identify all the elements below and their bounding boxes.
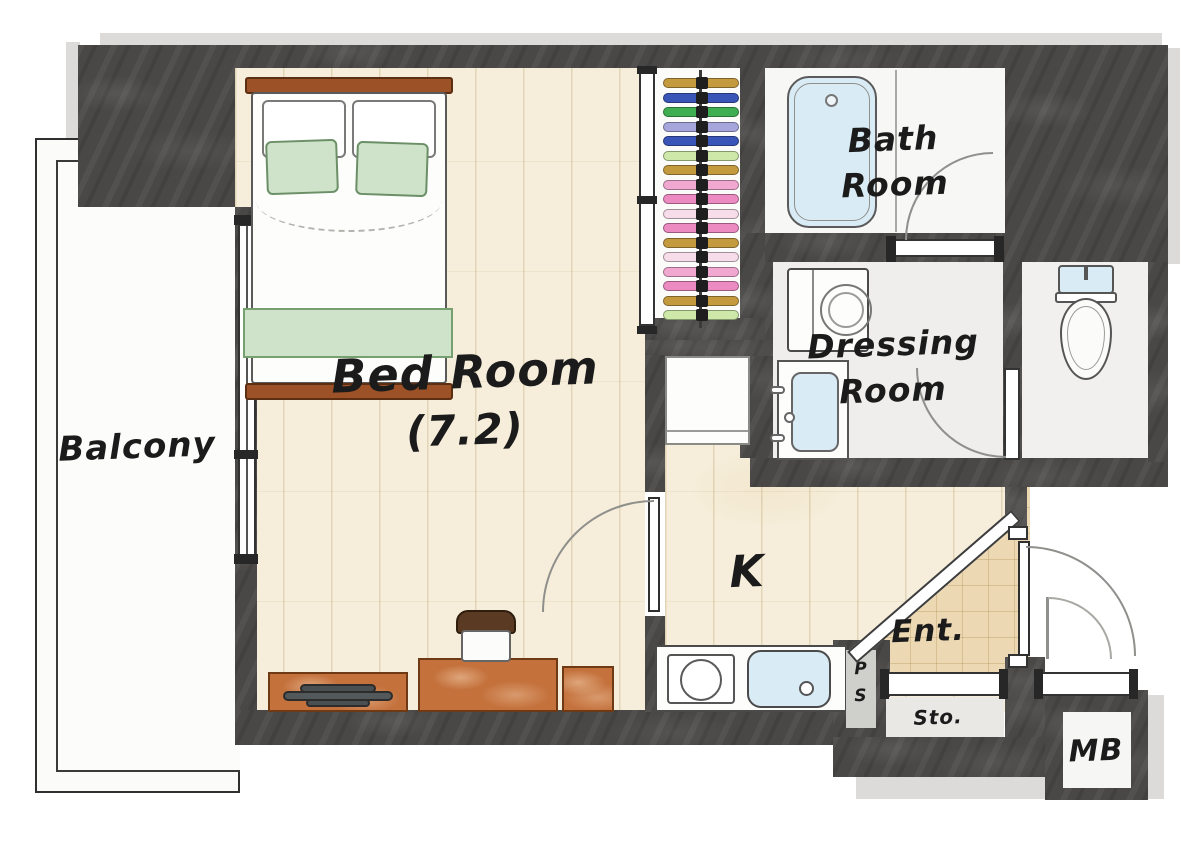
refrigerator-space-line: [667, 430, 748, 432]
bedroom-size-label: (7.2): [405, 403, 524, 456]
front-door-arc: [1026, 546, 1136, 656]
hanging-clothes: [663, 296, 739, 306]
wall-segment: [235, 710, 860, 745]
hanging-clothes: [663, 180, 739, 190]
shadow: [1148, 695, 1164, 799]
storage-door-bar: [884, 672, 1004, 696]
desk-chair-seat: [461, 630, 511, 662]
door-bar-cap: [1129, 669, 1138, 699]
hanger-clip: [696, 237, 708, 249]
bathtub-drain: [825, 94, 838, 107]
tv: [300, 684, 376, 693]
hanging-clothes: [663, 209, 739, 219]
floor-plan-image: P S Balcony Bed Room (7.2) Bath Room Dre…: [0, 0, 1200, 857]
window-cap: [234, 450, 258, 459]
hanging-clothes: [663, 136, 739, 146]
wall-segment: [645, 318, 765, 340]
pipe-shaft-label-s: S: [854, 686, 868, 706]
closet-door-cap: [637, 66, 657, 74]
washing-machine-drum-inner: [828, 292, 864, 328]
tv: [306, 699, 370, 707]
hanger-clip: [696, 106, 708, 118]
front-door-jamb: [1008, 526, 1028, 540]
door-bar-cap: [994, 236, 1004, 262]
hanging-clothes: [663, 281, 739, 291]
shadow: [1168, 48, 1180, 264]
hanging-clothes: [663, 78, 739, 88]
wall-segment: [750, 458, 1168, 487]
window-cap: [234, 554, 258, 564]
hanger-clip: [696, 208, 708, 220]
toilet-door-leaf: [1004, 368, 1020, 460]
side-cabinet: [562, 666, 614, 712]
hanging-clothes: [663, 310, 739, 320]
door-bar-cap: [1034, 669, 1043, 699]
vanity-basin: [791, 372, 839, 452]
vanity-faucet: [770, 386, 785, 394]
wall-segment: [78, 45, 235, 207]
desk: [418, 658, 558, 712]
vanity-knob: [784, 412, 795, 423]
hanger-clip: [696, 77, 708, 89]
hanging-clothes: [663, 165, 739, 175]
sink-drain: [799, 681, 814, 696]
hanger-clip: [696, 179, 708, 191]
bathroom-door-bar: [893, 239, 997, 257]
hanging-clothes: [663, 223, 739, 233]
door-bar-cap: [880, 669, 889, 699]
hanger-clip: [696, 150, 708, 162]
closet-door-cap: [637, 326, 657, 334]
wall-segment: [1005, 45, 1168, 262]
bedroom-label: Bed Room: [330, 340, 599, 403]
kitchen-label: K: [729, 546, 766, 598]
storage-label: Sto.: [913, 704, 963, 730]
hanger-clip: [696, 121, 708, 133]
hanger-clip: [696, 164, 708, 176]
vanity-faucet: [770, 434, 785, 442]
hanger-clip: [696, 222, 708, 234]
hanger-clip: [696, 295, 708, 307]
hanging-clothes: [663, 107, 739, 117]
hanging-clothes: [663, 151, 739, 161]
hanging-clothes: [663, 238, 739, 248]
hanger-clip: [696, 92, 708, 104]
balcony-label: Balcony: [58, 424, 217, 469]
dressing-room-label-line1: Dressing: [806, 322, 979, 367]
hanger-clip: [696, 266, 708, 278]
closet-sliding-door: [639, 202, 655, 326]
wall-segment: [833, 737, 1065, 777]
door-bar-cap: [999, 669, 1008, 699]
closet-sliding-door: [639, 72, 655, 198]
dressing-room-label-line2: Room: [839, 369, 948, 412]
meter-box-label: MB: [1068, 733, 1124, 770]
hanging-clothes: [663, 252, 739, 262]
front-door-jamb: [1008, 654, 1028, 668]
bed-fold-line: [256, 170, 442, 232]
hanger-clip: [696, 193, 708, 205]
toilet-tank-button: [1084, 267, 1088, 280]
hanging-clothes: [663, 194, 739, 204]
bathroom-label-line2: Room: [841, 163, 950, 206]
stove-burner: [680, 659, 722, 701]
hanger-clip: [696, 135, 708, 147]
hanger-clip: [696, 309, 708, 321]
bathroom-label-line1: Bath: [847, 118, 939, 160]
hanging-clothes: [663, 122, 739, 132]
kitchen-sink: [747, 650, 831, 708]
wall-segment: [645, 340, 773, 356]
wall-segment: [1148, 262, 1168, 462]
entrance-label: Ent.: [890, 612, 965, 651]
hanger-clip: [696, 251, 708, 263]
door-bar-cap: [886, 236, 896, 262]
meter-box-door-bar: [1038, 672, 1136, 696]
hanger-clip: [696, 280, 708, 292]
closet-door-cap: [637, 196, 657, 204]
hanging-clothes: [663, 93, 739, 103]
hanging-clothes: [663, 267, 739, 277]
